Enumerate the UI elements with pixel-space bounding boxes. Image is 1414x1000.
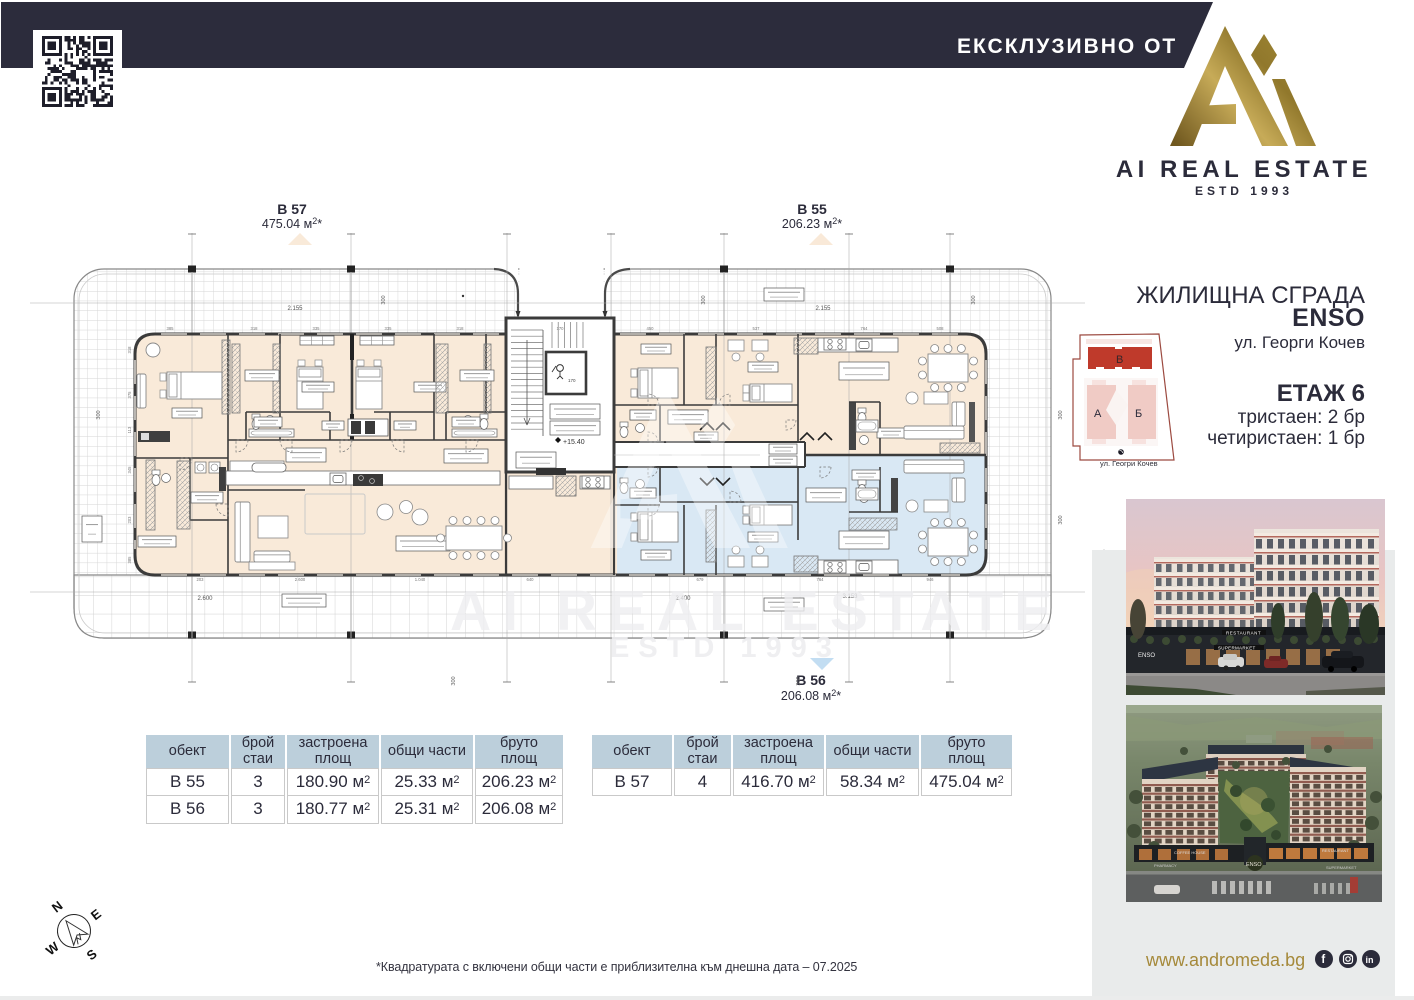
svg-text:А: А: [1094, 408, 1102, 420]
svg-text:PHARMACY: PHARMACY: [1154, 863, 1177, 868]
svg-text:300: 300: [701, 295, 707, 304]
svg-text:300: 300: [1058, 410, 1064, 419]
svg-text:345: 345: [127, 466, 132, 474]
svg-text:COFFEE HOUSE: COFFEE HOUSE: [1174, 850, 1206, 855]
svg-text:300: 300: [381, 295, 387, 304]
svg-text:in: in: [1366, 955, 1374, 965]
svg-text:203: 203: [127, 516, 132, 524]
svg-text:W: W: [43, 938, 62, 958]
svg-text:170: 170: [568, 378, 576, 383]
svg-text:375: 375: [127, 391, 132, 399]
svg-text:508: 508: [937, 326, 945, 331]
svg-text:764: 764: [861, 326, 869, 331]
svg-text:300: 300: [1058, 515, 1064, 524]
svg-text:N: N: [49, 898, 66, 916]
svg-text:450: 450: [647, 326, 655, 331]
svg-text:318: 318: [457, 326, 465, 331]
svg-text:SUPERMARKET: SUPERMARKET: [1218, 646, 1256, 651]
svg-text:300: 300: [971, 295, 977, 304]
svg-text:В: В: [1116, 354, 1123, 366]
svg-text:ENSO: ENSO: [1246, 862, 1262, 868]
svg-text:385: 385: [167, 326, 175, 331]
svg-text:203: 203: [197, 577, 205, 582]
svg-text:537: 537: [753, 326, 761, 331]
svg-text:RESTAURANT: RESTAURANT: [1226, 631, 1261, 636]
svg-text:Б: Б: [1135, 408, 1142, 420]
svg-text:ENSO: ENSO: [1138, 653, 1155, 659]
svg-text:2.600: 2.600: [295, 577, 306, 582]
svg-text:ул. Геогри Кочев: ул. Геогри Кочев: [1100, 459, 1158, 468]
svg-text:300: 300: [451, 676, 457, 685]
svg-text:2.155: 2.155: [287, 306, 303, 312]
svg-text:113: 113: [127, 426, 132, 433]
svg-text:1.040: 1.040: [415, 577, 426, 582]
svg-text:2.155: 2.155: [815, 306, 831, 312]
svg-text:+15.40: +15.40: [563, 439, 585, 446]
svg-text:300: 300: [96, 410, 102, 419]
svg-text:2.600: 2.600: [197, 596, 213, 602]
svg-text:SUPERMARKET: SUPERMARKET: [1326, 865, 1357, 870]
svg-text:RESTAURANT: RESTAURANT: [1322, 848, 1349, 853]
svg-text:335: 335: [385, 326, 393, 331]
svg-text:170: 170: [557, 326, 565, 331]
svg-text:f: f: [1321, 954, 1325, 966]
svg-text:318: 318: [127, 346, 132, 354]
svg-text:385: 385: [127, 556, 132, 564]
svg-text:335: 335: [313, 326, 321, 331]
svg-text:300: 300: [796, 676, 802, 685]
svg-text:318: 318: [251, 326, 259, 331]
svg-text:S: S: [84, 946, 100, 963]
svg-text:E: E: [88, 906, 104, 923]
